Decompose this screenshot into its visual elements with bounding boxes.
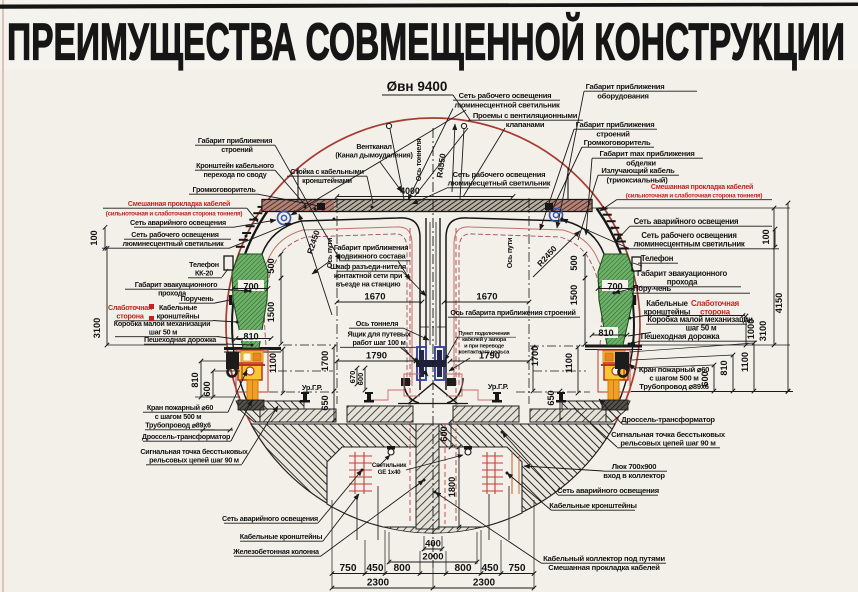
svg-text:750: 750 — [340, 563, 357, 574]
svg-text:1700: 1700 — [530, 346, 540, 366]
svg-text:500: 500 — [266, 258, 276, 273]
svg-text:контактной сети при: контактной сети при — [334, 271, 402, 280]
svg-text:1000: 1000 — [746, 319, 756, 339]
svg-text:800: 800 — [394, 563, 411, 574]
svg-text:Проемы с вентиляционными: Проемы с вентиляционными — [473, 111, 578, 120]
svg-text:работ шаг 100 м: работ шаг 100 м — [352, 338, 405, 347]
svg-text:Кран пожарный ⌀60: Кран пожарный ⌀60 — [147, 403, 214, 412]
svg-text:Дроссель-трансформатор: Дроссель-трансформатор — [142, 432, 231, 441]
svg-text:800: 800 — [455, 563, 472, 574]
svg-text:кронштейнами: кронштейнами — [302, 176, 352, 185]
svg-text:Пешеходная дорожка: Пешеходная дорожка — [641, 332, 720, 341]
svg-text:ПРЕИМУЩЕСТВА СОВМЕЩЕННОЙ КОНСТ: ПРЕИМУЩЕСТВА СОВМЕЩЕННОЙ КОНСТРУКЦИИ — [7, 13, 845, 72]
svg-text:2300: 2300 — [367, 578, 390, 589]
svg-text:700: 700 — [607, 282, 622, 292]
svg-text:Стойка с кабельными: Стойка с кабельными — [290, 167, 364, 176]
svg-text:рельсовых цепей шаг 90 м: рельсовых цепей шаг 90 м — [149, 456, 239, 465]
svg-text:1800: 1800 — [447, 477, 457, 497]
svg-text:600: 600 — [356, 373, 365, 386]
svg-text:Ур.Г.Р.: Ур.Г.Р. — [488, 382, 509, 391]
svg-text:1100: 1100 — [268, 353, 278, 373]
svg-text:строений: строений — [221, 145, 252, 154]
svg-text:Кабельные кронштейны: Кабельные кронштейны — [240, 532, 323, 541]
svg-text:GE 1х40: GE 1х40 — [378, 469, 401, 476]
svg-text:вход в коллектор: вход в коллектор — [603, 471, 665, 480]
svg-text:810: 810 — [719, 360, 729, 375]
svg-text:Громкоговоритель: Громкоговоритель — [192, 185, 256, 194]
svg-text:Пешеходная дорожка: Пешеходная дорожка — [144, 335, 217, 344]
svg-text:кабелей у запора: кабелей у запора — [462, 336, 507, 343]
svg-text:(сильноточная и слаботочная ст: (сильноточная и слаботочная сторона тонн… — [106, 211, 243, 218]
svg-text:Ось габарита приближения строе: Ось габарита приближения строений — [450, 308, 575, 317]
svg-text:КК-20: КК-20 — [195, 269, 213, 278]
svg-text:1100: 1100 — [740, 352, 750, 372]
svg-text:люминесцентный светильник: люминесцентный светильник — [122, 239, 224, 248]
svg-text:клапанами: клапанами — [506, 120, 545, 129]
svg-text:въезде на станцию: въезде на станцию — [336, 280, 401, 289]
svg-text:Железобетонная колонна: Железобетонная колонна — [232, 547, 320, 556]
svg-text:1700: 1700 — [320, 351, 330, 371]
svg-text:и при переводе: и при переводе — [464, 343, 504, 349]
svg-text:Сеть аварийного освещения: Сеть аварийного освещения — [634, 217, 739, 226]
svg-text:Смешанная прокладка кабелей: Смешанная прокладка кабелей — [651, 183, 753, 191]
svg-text:1790: 1790 — [366, 351, 387, 362]
svg-text:450: 450 — [482, 563, 499, 574]
svg-text:650: 650 — [320, 395, 330, 410]
svg-text:рельсовых цепей шаг 90 м: рельсовых цепей шаг 90 м — [620, 439, 716, 448]
svg-text:600: 600 — [202, 381, 212, 396]
svg-text:810: 810 — [598, 328, 613, 338]
svg-text:Ур.Г.Р.: Ур.Г.Р. — [302, 383, 323, 392]
svg-text:3100: 3100 — [92, 318, 102, 338]
svg-text:прохода: прохода — [667, 278, 698, 287]
svg-text:Трубопровод ⌀89х6: Трубопровод ⌀89х6 — [145, 421, 211, 430]
svg-text:100: 100 — [89, 230, 99, 245]
svg-text:Дроссель-трансформатор: Дроссель-трансформатор — [621, 415, 715, 424]
svg-text:Громкоговоритель: Громкоговоритель — [584, 138, 651, 147]
svg-text:люминесцентной светильник: люминесцентной светильник — [454, 101, 560, 110]
svg-text:3100: 3100 — [758, 321, 768, 341]
svg-text:400: 400 — [425, 539, 441, 550]
svg-text:Сеть аварийного освещения: Сеть аварийного освещения — [130, 218, 226, 227]
svg-text:Габарит max приближения: Габарит max приближения — [599, 149, 694, 158]
svg-text:Кабельный коллектор под путями: Кабельный коллектор под путями — [543, 554, 665, 563]
svg-text:Пору-чень: Пору-чень — [633, 284, 672, 293]
svg-text:Кабельные кронштейны: Кабельные кронштейны — [549, 501, 636, 510]
svg-text:Смешанная прокладка кабелей: Смешанная прокладка кабелей — [548, 563, 660, 572]
svg-text:1790: 1790 — [479, 351, 500, 362]
svg-text:(сильноточная и слаботочная ст: (сильноточная и слаботочная сторона тонн… — [626, 193, 763, 200]
svg-text:Светильник: Светильник — [372, 462, 407, 469]
svg-text:2000: 2000 — [422, 552, 443, 563]
svg-text:Габарит приближения: Габарит приближения — [586, 82, 665, 91]
svg-text:600: 600 — [700, 371, 710, 386]
svg-text:1670: 1670 — [476, 292, 497, 303]
svg-text:оборудования: оборудования — [597, 92, 648, 101]
svg-text:4000: 4000 — [400, 186, 420, 196]
svg-text:Ось тоннеля: Ось тоннеля — [356, 319, 399, 328]
svg-text:1670: 1670 — [364, 292, 385, 303]
svg-text:600: 600 — [439, 426, 449, 441]
svg-text:Шкаф разъеди-нителя: Шкаф разъеди-нителя — [330, 262, 406, 271]
svg-text:Телефон: Телефон — [641, 254, 674, 263]
svg-text:1500: 1500 — [266, 302, 276, 322]
svg-text:810: 810 — [243, 332, 258, 342]
svg-text:Габарит приближения: Габарит приближения — [576, 120, 655, 129]
svg-text:Ось пути: Ось пути — [505, 238, 514, 268]
svg-text:люминесцетный светильник: люминесцетный светильник — [448, 179, 551, 188]
svg-text:Трубопровод ⌀89х6: Трубопровод ⌀89х6 — [639, 382, 709, 391]
svg-text:Габарит приближения: Габарит приближения — [198, 136, 272, 145]
svg-text:подвижного состава: подвижного состава — [337, 252, 407, 261]
svg-text:810: 810 — [190, 372, 200, 387]
svg-text:Люк 700х900: Люк 700х900 — [612, 462, 657, 471]
svg-text:450: 450 — [367, 563, 384, 574]
svg-text:(Канал дымоудаления): (Канал дымоудаления) — [335, 151, 413, 160]
svg-text:Пункт подключения: Пункт подключения — [458, 331, 509, 337]
svg-text:Смешанная прокладка кабелей: Смешанная прокладка кабелей — [128, 200, 230, 208]
svg-text:2300: 2300 — [473, 578, 496, 589]
svg-text:Øвн 9400: Øвн 9400 — [387, 79, 448, 94]
svg-text:100: 100 — [761, 229, 771, 244]
svg-text:Сеть рабочего освещения: Сеть рабочего освещения — [131, 230, 218, 239]
svg-text:Кронштейн кабельного: Кронштейн кабельного — [196, 161, 275, 170]
svg-text:Ось тоннеля: Ось тоннеля — [414, 139, 423, 182]
svg-text:перехода по своду: перехода по своду — [203, 170, 266, 179]
svg-text:1500: 1500 — [569, 285, 579, 305]
svg-text:Поручень: Поручень — [181, 294, 215, 303]
svg-text:650: 650 — [546, 390, 556, 405]
svg-text:750: 750 — [509, 563, 526, 574]
svg-text:500: 500 — [569, 255, 579, 270]
svg-text:Сеть рабочего освещения: Сеть рабочего освещения — [459, 91, 552, 100]
svg-text:люминесцентным светильник: люминесцентным светильник — [633, 240, 744, 249]
svg-text:Сеть аварийного освещения: Сеть аварийного освещения — [222, 514, 318, 523]
svg-text:Сеть аварийного освещения: Сеть аварийного освещения — [557, 486, 659, 495]
svg-text:4150: 4150 — [774, 293, 784, 313]
svg-text:Излучающий кабель: Излучающий кабель — [601, 166, 675, 175]
svg-text:1100: 1100 — [564, 353, 574, 373]
